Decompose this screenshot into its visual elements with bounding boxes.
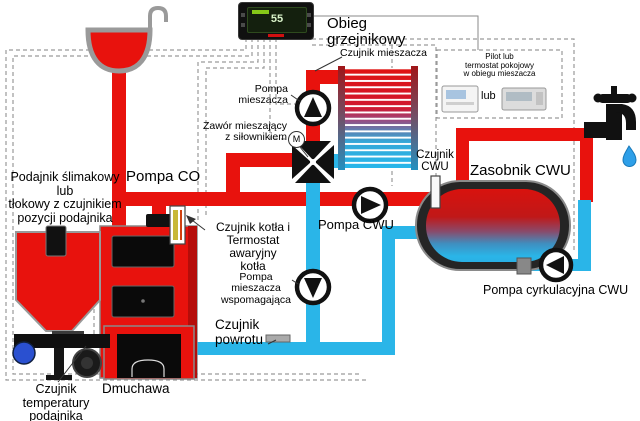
pipe-valve-riser [226,153,240,199]
controller-button-left2[interactable] [241,23,245,27]
label-feeder: Podajnik ślimakowy lub tłokowy z czujnik… [0,171,130,225]
tank-interior [426,189,560,262]
label-tank: Zasobnik CWU [470,163,574,179]
label-mixer-pump: Pompa mieszacza [222,84,288,107]
label-blower: Dmuchawa [102,382,194,397]
boiler-controller[interactable]: 55 [238,2,314,40]
label-support-pump: Pompa mieszacza wspomagająca [218,272,294,306]
thermostat-screen [506,92,532,101]
boiler-sensor-fill [173,210,178,240]
pipe-valve-feed [240,153,292,167]
thermostat-keys [536,92,543,105]
radiator [338,66,418,170]
circulation-pump-symbol [541,250,571,280]
label-cwu-sensor: Czujnik CWU [407,149,463,174]
label-cwu-pump: Pompa CWU [318,218,402,232]
callout-mixer-sensor [315,57,342,71]
pipe-faucet-riser [580,128,593,202]
controller-button-right[interactable] [307,13,311,17]
cwu-sensor-probe [431,176,440,208]
controller-button-left[interactable] [241,13,245,17]
faucet-knob-right [628,94,637,103]
boiler-sensor-line [180,210,182,240]
callout-arrowhead [186,215,196,224]
label-or: lub [481,91,501,103]
boiler-assembly [13,206,197,380]
pipe-supply-main [112,192,438,206]
remote-screen [446,90,466,99]
water-drop-icon [623,146,636,167]
blower-hub [81,357,93,369]
label-co-pump: Pompa CO [126,169,216,185]
controller-temperature: 55 [248,13,306,25]
mixer-pump-symbol [297,92,329,124]
pipe-dhw-top [456,128,593,141]
radiator-fins [345,68,411,168]
controller-screen: 55 [247,7,307,33]
label-circulation-pump: Pompa cyrkulacyjna CWU [483,284,639,298]
tank-bottom-port [517,258,531,274]
faucet-knob-left [594,94,603,103]
feeder-leg [54,348,64,377]
expansion-tank [88,8,166,71]
controller-logo [268,34,284,37]
feeder-motor [13,342,35,364]
burner-opening [117,334,181,378]
remote-buttons [446,102,474,105]
label-mixer-sensor: Czujnik mieszacza [340,48,430,59]
support-mixer-pump-symbol [297,271,329,303]
faucet-post [611,86,617,96]
valve-actuator-m: M [288,131,305,148]
valve-center [310,159,316,165]
label-heating-circuit: Obieg grzejnikowy [327,16,439,48]
pipe-circulation-riser [578,200,591,271]
heating-system-diagram: 55 Obieg grzejnikowy Czujnik mieszacza P… [0,0,640,421]
pipe-tank-cold-riser [382,226,395,355]
hopper-cap [46,226,66,256]
label-room-thermostat: Pilot lub termostat pokojowy w obiegu mi… [441,53,558,79]
expansion-vessel [88,30,150,71]
label-mixing-valve: Zawór mieszający z siłownikiem [191,121,287,144]
label-return-sensor: Czujnik powrotu [215,318,279,347]
door-handle-icon [141,299,145,303]
radiator-rail-left [338,66,345,170]
boiler-door-top [112,236,174,267]
label-feeder-temp-sensor: Czujnik temperatury podajnika [6,383,106,421]
feeder-foot [46,375,72,380]
controller-button-right2[interactable] [307,23,311,27]
label-boiler-sensor: Czujnik kotła i Termostat awaryjny kotła [203,221,303,273]
